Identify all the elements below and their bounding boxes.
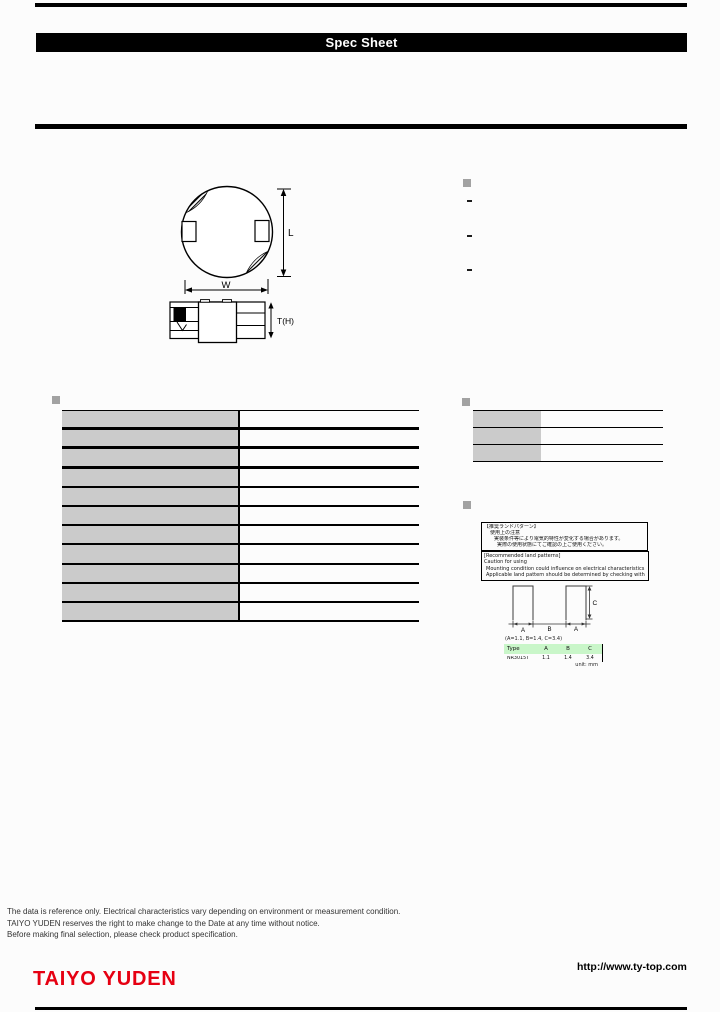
land-pad-left [513, 586, 533, 620]
spec-value-cell [240, 507, 419, 524]
dim-a-label: A [521, 628, 525, 634]
section-marker-icon-features [463, 179, 471, 187]
spec-value-cell [240, 411, 419, 427]
header-c: C [579, 646, 601, 652]
summary-table-row [473, 428, 663, 445]
spec-label-cell [62, 411, 240, 427]
summary-value-cell [541, 411, 663, 427]
component-side-view [170, 300, 265, 343]
summary-value-cell [541, 445, 663, 461]
land-pattern-dimensions [509, 586, 593, 628]
header-a: A [535, 646, 557, 652]
unit-note: unit: mm [566, 662, 598, 668]
feature-item-dash [467, 235, 472, 237]
summary-table [473, 410, 663, 462]
dimension-l-label: L [288, 228, 294, 239]
spec-value-cell [240, 430, 419, 446]
land-pad-right [566, 586, 586, 620]
spec-table-row [62, 507, 419, 526]
disclaimer-line: TAIYO YUDEN reserves the right to make c… [7, 918, 400, 930]
spec-label-cell [62, 488, 240, 505]
spec-value-cell [240, 545, 419, 562]
summary-value-cell [541, 428, 663, 444]
spec-value-cell [240, 565, 419, 582]
spec-table-row [62, 545, 419, 564]
website-url-link[interactable]: http://www.ty-top.com [577, 961, 687, 973]
spec-table-row [62, 526, 419, 545]
spec-label-cell [62, 526, 240, 543]
spec-table-row [62, 584, 419, 603]
spec-value-cell [240, 584, 419, 601]
spec-table-row [62, 449, 419, 468]
land-pattern-note-en: [Recommended land patterns] Caution for … [481, 551, 649, 581]
spec-label-cell [62, 469, 240, 486]
header-type: Type [504, 646, 535, 652]
feature-item-dash [467, 269, 472, 271]
section-marker-icon-spec-table [52, 396, 60, 404]
spec-sheet-page: Spec Sheet L W [0, 0, 720, 1012]
spec-value-cell [240, 449, 419, 465]
note-line: 実際の使用状態にてご確認の上ご使用ください。 [497, 542, 645, 548]
note-line: Applicable land pattern should be determ… [486, 572, 646, 578]
spec-table-row [62, 411, 419, 430]
summary-label-cell [473, 428, 541, 444]
section-marker-icon-summary-table [462, 398, 470, 406]
header-rule [35, 124, 687, 129]
spec-table-row [62, 469, 419, 488]
spec-label-cell [62, 507, 240, 524]
header-b: B [557, 646, 579, 652]
terminal-notch-left [182, 222, 196, 242]
dim-c-label: C [593, 600, 598, 607]
land-pattern-diagram: A B A C [498, 580, 623, 635]
spec-table-row [62, 603, 419, 622]
cell-c: 3.4 [579, 656, 601, 661]
land-pattern-table: Type A B C NR3015T 1.1 1.4 3.4 [504, 644, 602, 662]
terminal-notch-right [255, 221, 269, 242]
summary-label-cell [473, 445, 541, 461]
section-marker-icon-land-pattern [463, 501, 471, 509]
land-pattern-table-right-rule [602, 644, 603, 662]
cell-type: NR3015T [504, 656, 535, 661]
spec-label-cell [62, 584, 240, 601]
spec-table-row [62, 488, 419, 507]
page-title: Spec Sheet [36, 33, 687, 52]
feature-item-dash [467, 200, 472, 202]
dim-a2-label: A [574, 627, 578, 633]
dimension-t-label: T(H) [277, 316, 294, 326]
cell-a: 1.1 [535, 656, 557, 661]
summary-label-cell [473, 411, 541, 427]
disclaimer-line: Before making final selection, please ch… [7, 929, 400, 941]
spec-value-cell [240, 488, 419, 505]
land-pattern-table-row: NR3015T 1.1 1.4 3.4 [504, 654, 602, 662]
spec-value-cell [240, 469, 419, 486]
spec-table-row [62, 565, 419, 584]
spec-label-cell [62, 449, 240, 465]
spec-value-cell [240, 526, 419, 543]
dimension-t [268, 302, 273, 338]
top-rule [35, 3, 687, 7]
spec-label-cell [62, 565, 240, 582]
spec-label-cell [62, 430, 240, 446]
spec-table [62, 410, 419, 622]
land-pattern-values-note: (A=1.1, B=1.4, C=3.4) [505, 636, 562, 642]
summary-table-row [473, 445, 663, 462]
disclaimer-line: The data is reference only. Electrical c… [7, 906, 400, 918]
spec-label-cell [62, 545, 240, 562]
spec-value-cell [240, 603, 419, 620]
spec-label-cell [62, 603, 240, 620]
spec-table-row [62, 430, 419, 449]
dim-b-label: B [547, 627, 551, 633]
dimension-w-label: W [222, 280, 231, 291]
footer-disclaimer: The data is reference only. Electrical c… [7, 906, 400, 941]
land-pattern-table-header: Type A B C [504, 644, 602, 654]
summary-table-row [473, 411, 663, 428]
bottom-rule [35, 1007, 687, 1010]
taiyo-yuden-logo: TAIYO YUDEN [33, 968, 177, 991]
polarity-mark [174, 308, 187, 322]
package-dimension-diagram: L W T(H) [150, 170, 310, 350]
cell-b: 1.4 [557, 656, 579, 661]
land-pattern-note-jp: 【推奨ランドパターン】 使用上の注意 実装条件等により電気的特性が変化する場合が… [481, 522, 648, 551]
